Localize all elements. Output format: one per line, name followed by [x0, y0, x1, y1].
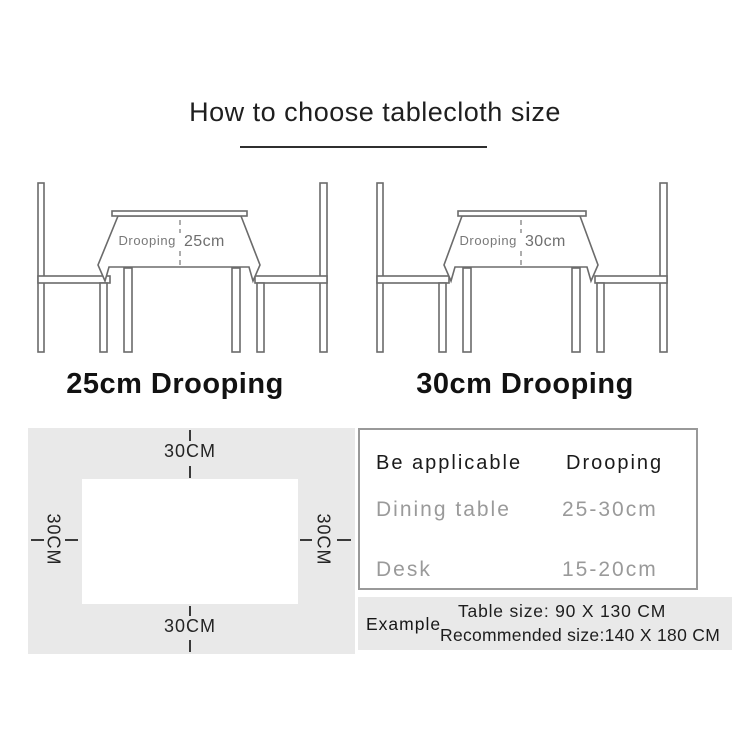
infographic-canvas: How to choose tablecloth size Drooping 2…: [0, 0, 750, 750]
top-dash-outer: [189, 430, 191, 441]
spec-header-applicable: Be applicable: [376, 452, 522, 475]
table-top-surface: [82, 479, 298, 604]
drooping-word-label: Drooping: [459, 233, 517, 248]
drooping-value-label: 30cm: [525, 233, 566, 250]
illustration-30cm-drooping: Drooping 30cm: [370, 175, 680, 360]
drop-label-top: 30CM: [150, 441, 230, 462]
caption-30cm-drooping: 30cm Drooping: [395, 368, 655, 401]
drop-label-right: 30CM: [313, 500, 334, 580]
chair-right: [255, 183, 327, 352]
chair-right: [595, 183, 667, 352]
top-dash-inner: [189, 466, 191, 478]
spec-row-dining-table-value: 25-30cm: [562, 498, 658, 522]
right-dash-inner: [300, 539, 312, 541]
size-diagram: 30CM 30CM 30CM 30CM: [28, 428, 355, 654]
right-dash-outer: [337, 539, 351, 541]
bottom-dash-inner: [189, 606, 191, 616]
chair-left: [377, 183, 449, 352]
drop-label-bottom: 30CM: [150, 616, 230, 637]
drooping-value-label: 25cm: [184, 233, 225, 250]
spec-row-dining-table-item: Dining table: [376, 498, 511, 522]
table-legs: [124, 268, 240, 352]
bottom-dash-outer: [189, 640, 191, 652]
left-dash-inner: [65, 539, 78, 541]
example-box: Example Table size: 90 X 130 CM Recommen…: [358, 597, 732, 650]
title-underline: [240, 146, 487, 148]
spec-row-desk-item: Desk: [376, 558, 432, 582]
table-legs: [463, 268, 580, 352]
example-label: Example: [366, 614, 441, 635]
drooping-word-label: Drooping: [118, 233, 176, 248]
spec-table: Be applicable Drooping Dining table 25-3…: [358, 428, 698, 590]
drop-label-left: 30CM: [43, 500, 64, 580]
illustration-25cm-drooping: Drooping 25cm: [20, 175, 340, 360]
example-recommended-size: Recommended size:140 X 180 CM: [440, 625, 720, 646]
spec-header-drooping: Drooping: [566, 452, 663, 475]
example-table-size: Table size: 90 X 130 CM: [458, 601, 666, 622]
page-title: How to choose tablecloth size: [0, 97, 750, 128]
caption-25cm-drooping: 25cm Drooping: [45, 368, 305, 401]
spec-row-desk-value: 15-20cm: [562, 558, 658, 582]
